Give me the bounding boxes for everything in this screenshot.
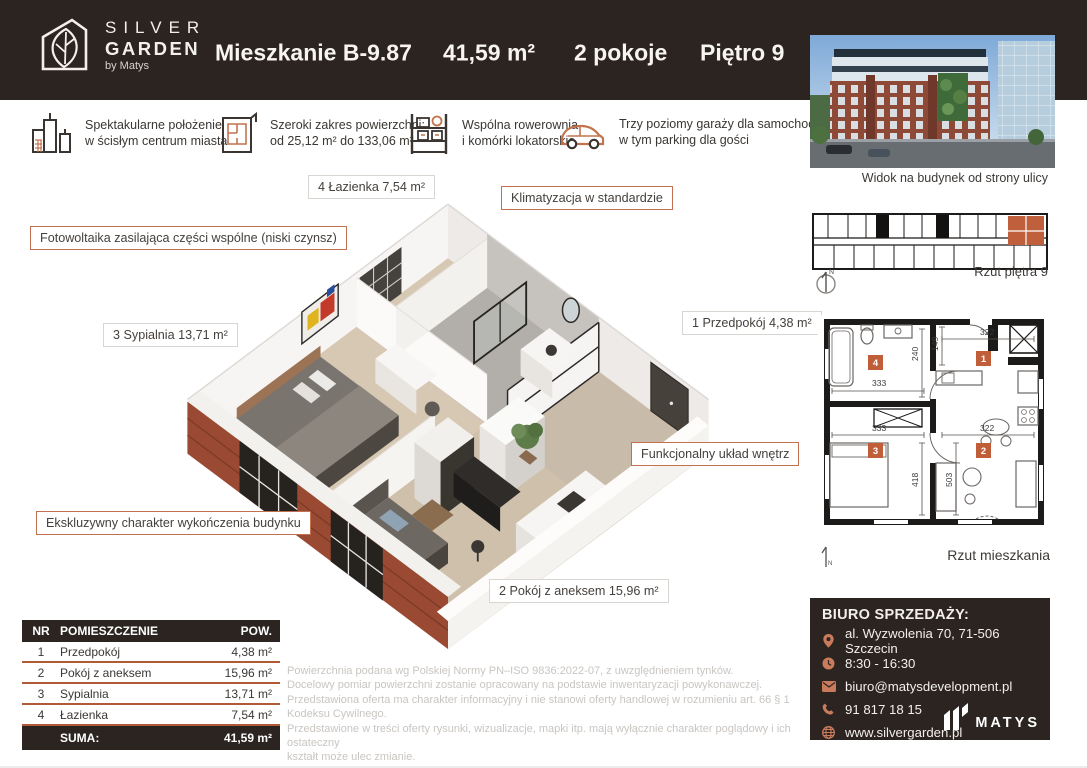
apartment-rooms: 2 pokoje — [574, 40, 667, 67]
sales-office-panel: BIURO SPRZEDAŻY: al. Wyzwolenia 70, 71-5… — [810, 598, 1050, 740]
row-area: 15,96 m² — [204, 666, 280, 680]
room-number-bedroom: 3 — [873, 446, 878, 457]
table-row: 4 Łazienka 7,54 m² — [22, 705, 280, 726]
logo-silver: SILVER — [105, 19, 206, 37]
dim-bath-height: 240 — [910, 347, 920, 361]
phone-icon — [822, 703, 836, 717]
house-leaf-logo-icon — [36, 16, 92, 76]
city-icon — [30, 110, 74, 156]
feature-garage-line2: w tym parking dla gości — [619, 132, 834, 149]
col-header-nr: NR — [22, 624, 60, 638]
label-bedroom: 3 Sypialnia 13,71 m² — [103, 323, 238, 347]
label-functional-layout: Funkcjonalny układ wnętrz — [631, 442, 799, 466]
row-area: 13,71 m² — [204, 687, 280, 701]
office-phone[interactable]: 91 817 18 15 — [845, 702, 922, 717]
apartment-title: Mieszkanie B-9.87 — [215, 40, 412, 67]
row-nr: 2 — [22, 666, 60, 680]
globe-icon — [822, 726, 836, 740]
unit-plan: 333 240 322 149 333 418 322 503 4 1 3 2 — [818, 315, 1050, 552]
table-row: 1 Przedpokój 4,38 m² — [22, 642, 280, 663]
col-header-name: POMIESZCZENIE — [60, 624, 204, 638]
rooms-table: NR POMIESZCZENIE POW. 1 Przedpokój 4,38 … — [22, 620, 280, 750]
matys-logo-text: MATYS — [975, 715, 1040, 731]
label-living-room: 2 Pokój z aneksem 15,96 m² — [489, 579, 669, 603]
svg-text:N: N — [829, 269, 834, 276]
feature-location-line1: Spektakularne położenie — [85, 117, 227, 134]
dim-hall-width: 322 — [980, 327, 994, 337]
label-air-conditioning: Klimatyzacja w standardzie — [501, 186, 673, 210]
row-area: 4,38 m² — [204, 645, 280, 659]
label-hallway: 1 Przedpokój 4,38 m² — [682, 311, 822, 335]
envelope-icon — [822, 680, 836, 694]
row-name: Łazienka — [60, 708, 204, 722]
photo-caption: Widok na budynek od strony ulicy — [862, 171, 1048, 185]
office-address-row: al. Wyzwolenia 70, 71-506 Szczecin — [822, 629, 1038, 652]
apartment-floor: Piętro 9 — [700, 40, 784, 67]
location-pin-icon — [822, 634, 836, 648]
floor-plan-caption: Rzut piętra 9 — [974, 264, 1048, 279]
office-hours: 8:30 - 16:30 — [845, 656, 915, 671]
dim-living-width: 322 — [980, 423, 994, 433]
compass-floor: N — [814, 266, 838, 301]
dim-living-height: 503 — [944, 473, 954, 487]
silver-garden-logo: SILVER GARDEN by Matys — [36, 16, 206, 76]
dim-bath-width: 333 — [872, 378, 886, 388]
disclaimer-line: Powierzchnia podana wg Polskiej Normy PN… — [287, 664, 807, 678]
legal-disclaimer: Powierzchnia podana wg Polskiej Normy PN… — [287, 664, 807, 765]
table-row: 3 Sypialnia 13,71 m² — [22, 684, 280, 705]
feature-location: Spektakularne położenie w ścisłym centru… — [30, 110, 227, 156]
row-name: Przedpokój — [60, 645, 204, 659]
car-icon — [558, 112, 608, 152]
apartment-area: 41,59 m² — [443, 40, 535, 67]
row-nr: 4 — [22, 708, 60, 722]
matys-logo-mark — [942, 701, 972, 731]
row-area: 7,54 m² — [204, 708, 280, 722]
feature-garage-line1: Trzy poziomy garaży dla samochodów, — [619, 116, 834, 133]
floorplan-icon — [217, 110, 259, 156]
matys-logo: MATYS — [942, 701, 1040, 731]
building-photo — [810, 35, 1055, 168]
logo-garden: GARDEN — [105, 39, 206, 58]
compass-unit: N — [816, 543, 836, 574]
logo-by-matys: by Matys — [105, 61, 206, 73]
unit-plan-caption: Rzut mieszkania — [947, 547, 1050, 563]
disclaimer-line: Przedstawione w treści oferty rysunki, w… — [287, 722, 807, 751]
office-email[interactable]: biuro@matysdevelopment.pl — [845, 679, 1012, 694]
dim-bedroom-width: 333 — [872, 423, 886, 433]
total-label: SUMA: — [60, 731, 204, 745]
dim-hall-height: 149 — [930, 337, 940, 351]
col-header-area: POW. — [204, 624, 280, 638]
clock-icon — [822, 657, 836, 671]
room-number-living: 2 — [981, 446, 986, 457]
sales-office-title: BIURO SPRZEDAŻY: — [822, 607, 1038, 623]
office-email-row[interactable]: biuro@matysdevelopment.pl — [822, 675, 1038, 698]
label-bathroom: 4 Łazienka 7,54 m² — [308, 175, 435, 199]
feature-garage: Trzy poziomy garaży dla samochodów, w ty… — [558, 112, 834, 152]
total-value: 41,59 m² — [204, 731, 280, 745]
table-row: 2 Pokój z aneksem 15,96 m² — [22, 663, 280, 684]
room-number-hall: 1 — [981, 354, 987, 365]
feature-location-line2: w ścisłym centrum miasta — [85, 133, 227, 150]
row-name: Sypialnia — [60, 687, 204, 701]
feature-area-line2: od 25,12 m² do 133,06 m² — [270, 133, 425, 150]
svg-text:N: N — [828, 561, 832, 567]
disclaimer-line: Przedstawiona oferta ma charakter inform… — [287, 693, 807, 722]
feature-bike-storage: Wspólna rowerownia i komórki lokatorskie — [407, 110, 578, 156]
feature-area-range: Szeroki zakres powierzchni: od 25,12 m² … — [217, 110, 425, 156]
rooms-table-total: SUMA: 41,59 m² — [22, 726, 280, 750]
label-exclusive-finish: Ekskluzywny charakter wykończenia budynk… — [36, 511, 311, 535]
disclaimer-line: Docelowy pomiar powierzchni zostanie opr… — [287, 678, 807, 692]
feature-area-line1: Szeroki zakres powierzchni: — [270, 117, 425, 134]
disclaimer-line: kształt może ulec zmianie. — [287, 750, 807, 764]
office-address: al. Wyzwolenia 70, 71-506 Szczecin — [845, 626, 1038, 656]
dim-bedroom-height: 418 — [910, 473, 920, 487]
rooms-table-header: NR POMIESZCZENIE POW. — [22, 620, 280, 642]
row-name: Pokój z aneksem — [60, 666, 204, 680]
row-nr: 3 — [22, 687, 60, 701]
label-photovoltaics: Fotowoltaika zasilająca części wspólne (… — [30, 226, 347, 250]
row-nr: 1 — [22, 645, 60, 659]
room-number-bath: 4 — [873, 358, 879, 369]
storage-icon — [407, 110, 451, 156]
